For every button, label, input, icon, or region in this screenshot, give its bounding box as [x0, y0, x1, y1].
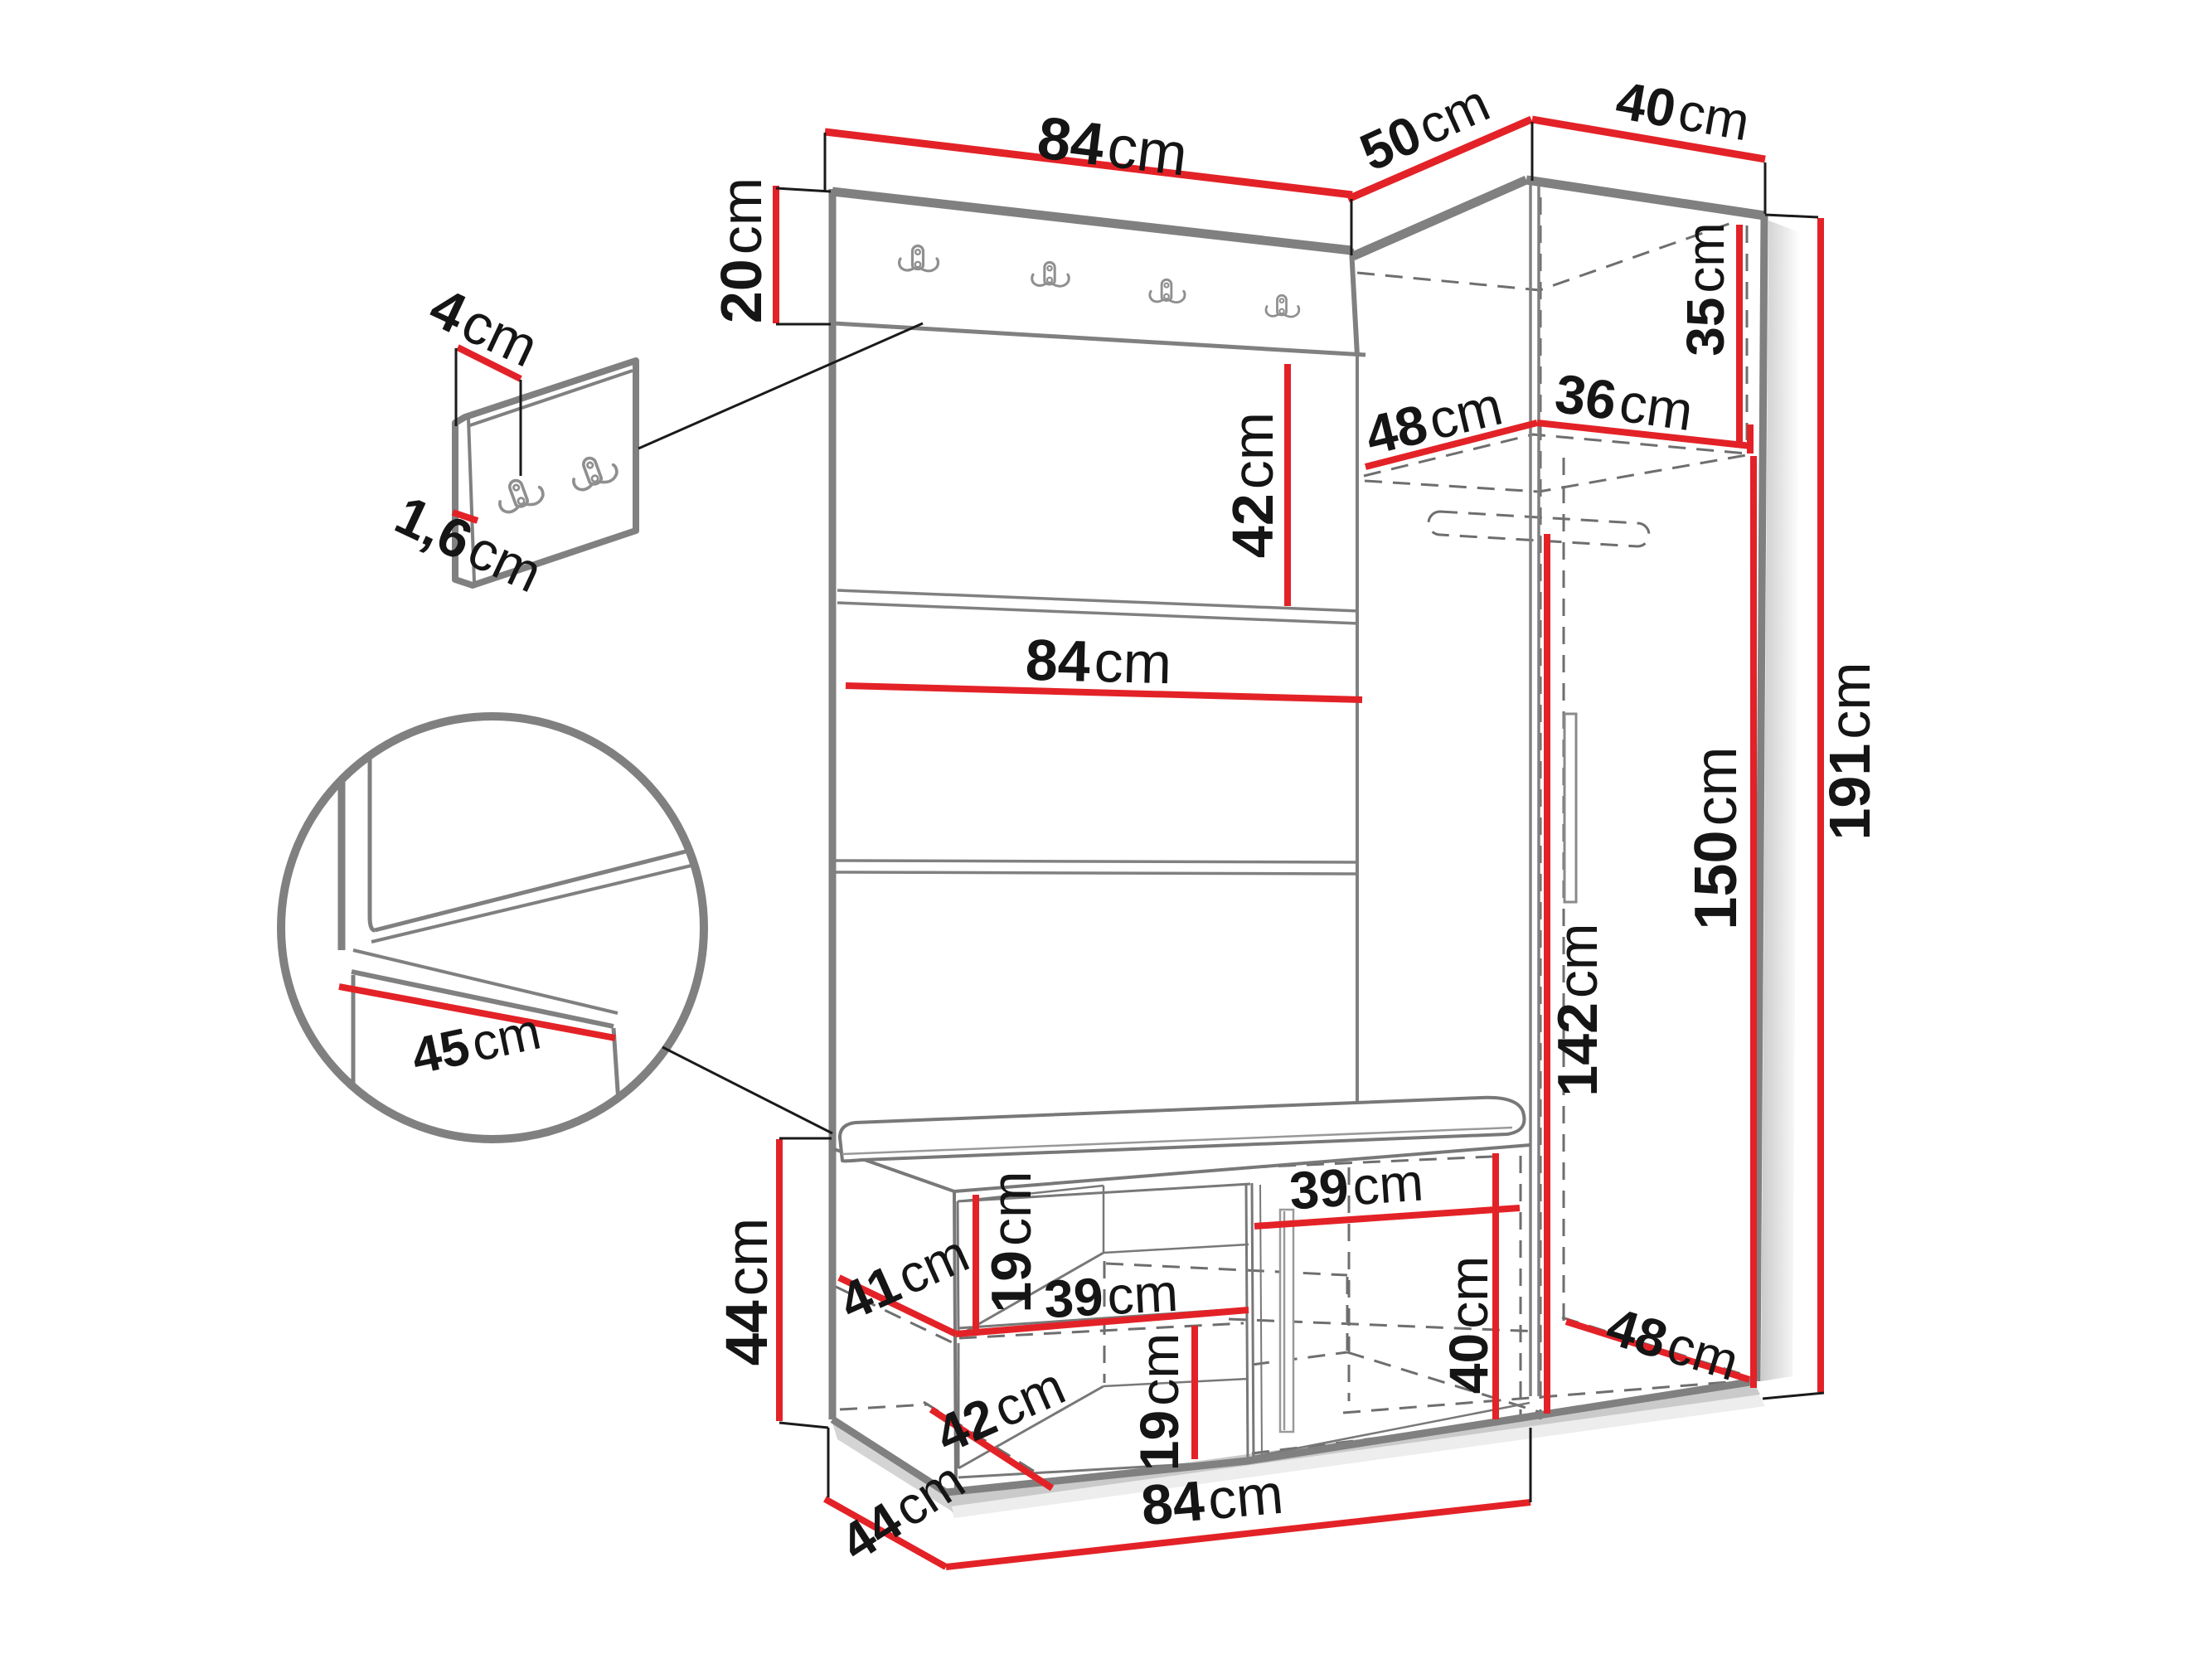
svg-text:84cm: 84cm: [1138, 1463, 1285, 1538]
svg-text:40cm: 40cm: [1438, 1256, 1499, 1394]
svg-text:44cm: 44cm: [715, 1218, 780, 1366]
svg-text:42cm: 42cm: [1220, 412, 1285, 558]
svg-text:84cm: 84cm: [1025, 628, 1172, 696]
svg-text:142cm: 142cm: [1546, 923, 1609, 1096]
svg-text:150cm: 150cm: [1683, 746, 1749, 929]
svg-text:19cm: 19cm: [1128, 1333, 1190, 1471]
svg-text:191cm: 191cm: [1817, 662, 1882, 840]
svg-text:20cm: 20cm: [709, 177, 774, 323]
svg-text:39cm: 39cm: [1288, 1152, 1425, 1220]
svg-text:39cm: 39cm: [1043, 1263, 1180, 1329]
svg-text:35cm: 35cm: [1676, 222, 1735, 357]
svg-text:19cm: 19cm: [980, 1171, 1043, 1312]
